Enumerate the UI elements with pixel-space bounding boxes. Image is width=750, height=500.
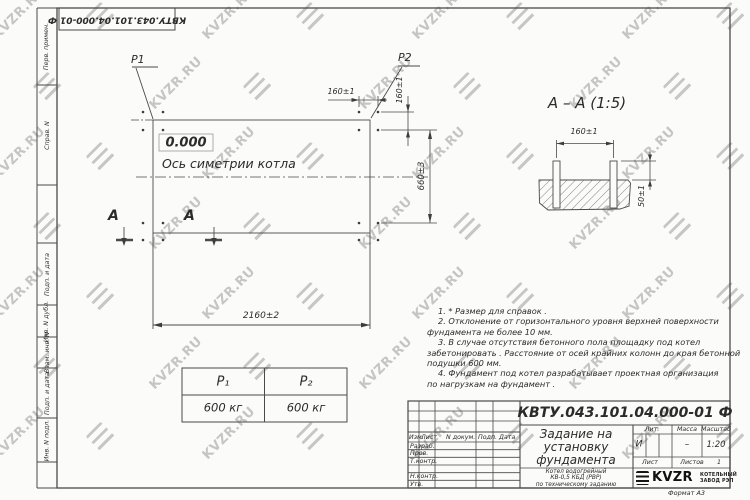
title-block-doc-number: КВТУ.043.101.04.000-01 Ф [518, 406, 733, 420]
note-line: 1. * Размер для справок . [427, 306, 745, 316]
note-line: забетонировать . Расстояние от осей край… [427, 348, 745, 358]
margin-label: Подп. и дата [44, 372, 51, 415]
listov-label: Листов [680, 460, 704, 466]
dim-160-vertical: 160±1 [396, 76, 404, 103]
masshtab-header: Масштаб [701, 427, 731, 433]
margin-cell-sprav-n: Справ. N [37, 85, 57, 185]
drawing-subtitle-line: по техническому заданию [536, 483, 617, 489]
col-header-data: Дата [499, 435, 515, 441]
note-line: 4. Фундамент под котел разрабатывает про… [427, 368, 745, 378]
dim-160-horizontal: 160±1 [327, 88, 354, 96]
level-mark: 0.000 [165, 137, 206, 150]
kvzr-logo-caption: ЗАВОД РЭП [700, 479, 734, 484]
margin-label: Перв. примен. [44, 23, 51, 70]
note-line: 3. В случае отсутствия бетонного пола пл… [427, 337, 745, 347]
note-line: фундамента не более 10 мм. [427, 327, 745, 337]
lit-header: Лит. [645, 427, 660, 433]
row-label-utv: Утв. [410, 482, 423, 488]
masshtab-value: 1:20 [706, 441, 725, 450]
section-letter-a-right: A [184, 209, 195, 223]
blueprint-sheet: { "watermark": { "text": "KVZR.RU" }, "m… [0, 0, 750, 500]
drawing-title-line: фундамента [536, 454, 615, 466]
section-letter-a-left: A [108, 209, 119, 223]
symmetry-axis-label: Ось симетрии котла [162, 158, 296, 171]
note-line: 2. Отклонение от горизонтального уровня … [427, 316, 745, 326]
massa-header: Масса [677, 427, 697, 433]
format-label: Формат А3 [668, 490, 705, 497]
load-table-value-p2: 600 кг [287, 402, 326, 414]
foundation-plan [116, 66, 437, 329]
margin-cell-podp-data-2: Подп. и дата [37, 368, 57, 418]
margin-label: Справ. N [44, 121, 51, 150]
kvzr-logo-text: KVZR [652, 470, 693, 485]
massa-value: – [685, 441, 690, 450]
load-table-header-p2: P₂ [299, 376, 312, 389]
list-label: Лист [642, 460, 658, 466]
corner-stamp-doc-number: КВТУ.043.101.04.000-01 Ф [48, 15, 186, 24]
row-label-t-kontr: Т.контр. [410, 459, 437, 465]
row-label-prov: Пров. [410, 451, 428, 457]
load-point-p1-label: P1 [131, 54, 145, 65]
load-table-header-p1: P₁ [216, 376, 229, 389]
lit-value: И [636, 441, 643, 450]
note-line: по нагрузкам на фундамент . [427, 379, 745, 389]
note-line: подушки 600 мм. [427, 358, 745, 368]
dim-660: 660±3 [418, 162, 427, 191]
row-label-n-kontr: Н.контр. [410, 474, 438, 480]
anchor-bolt [553, 161, 560, 208]
section-dim-160: 160±1 [570, 128, 597, 136]
kvzr-logo-caption: КОТЕЛЬНЫЙ [700, 473, 737, 478]
row-label-razrab: Разраб. [410, 444, 435, 450]
anchor-bolt [610, 161, 617, 208]
margin-cell-inv-podl: Инв. N подл. [37, 418, 57, 462]
load-point-p2-label: P2 [398, 52, 412, 63]
dim-2160: 2160±2 [243, 312, 279, 321]
margin-label: Подп. и дата [44, 253, 51, 296]
section-dim-50: 50±1 [638, 185, 646, 207]
load-table-value-p1: 600 кг [204, 402, 243, 414]
listov-value: 1 [717, 460, 721, 466]
section-view-title: А – А (1:5) [548, 96, 626, 111]
margin-cell-vzam-inv: Взам. инв. N [37, 337, 57, 368]
drawing-linework [0, 0, 750, 500]
col-header-n-dokum: N докум. [446, 435, 475, 441]
technical-notes: 1. * Размер для справок . 2. Отклонение … [427, 306, 745, 389]
drawing-title-line: установку [544, 441, 609, 453]
kvzr-logo-icon [636, 471, 649, 485]
col-header-podp: Подп. [478, 435, 497, 441]
anchor-bolt-points [142, 111, 380, 242]
drawing-title-line: Задание на [540, 428, 613, 440]
margin-label: Инв. N подл. [44, 419, 51, 461]
col-header-list: Лист [421, 435, 437, 441]
margin-label: Взам. инв. N [44, 332, 51, 373]
margin-cell-podp-data-1: Подп. и дата [37, 243, 57, 305]
